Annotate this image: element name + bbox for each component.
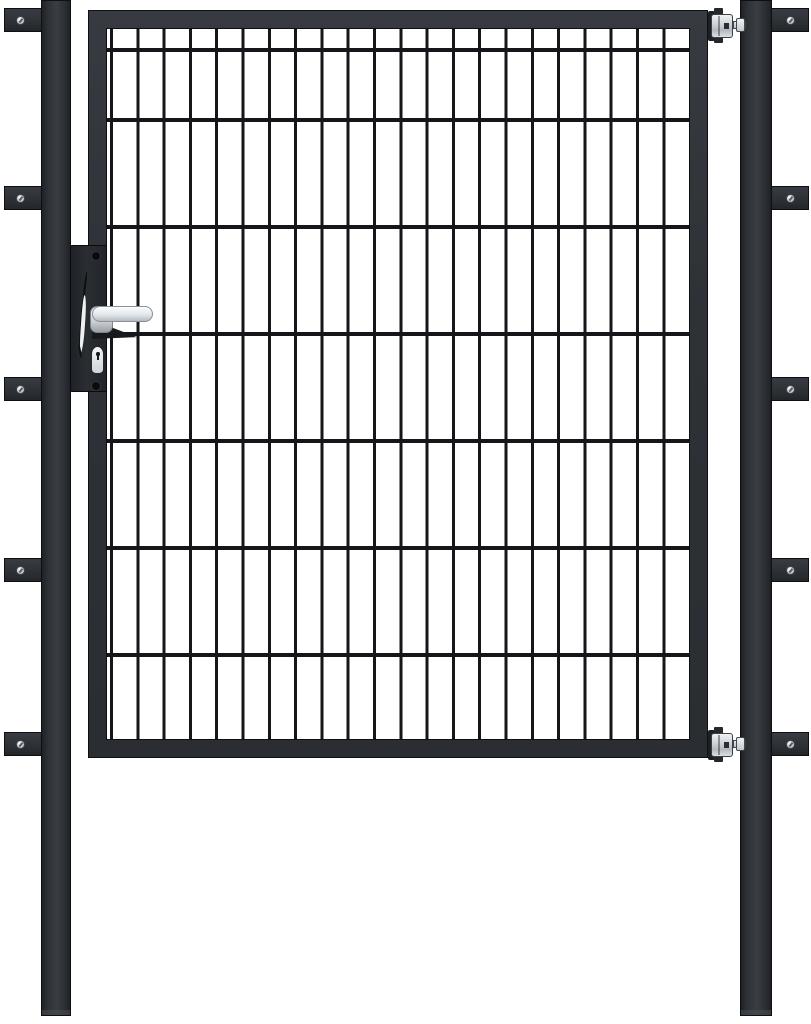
wall-bracket: [770, 558, 809, 582]
screw-icon: [786, 16, 795, 25]
fence-post-left: [41, 0, 71, 1016]
wall-bracket: [770, 732, 809, 756]
gate-frame: [88, 10, 708, 758]
wall-bracket: [770, 377, 809, 401]
screw-icon: [786, 740, 795, 749]
lock-cylinder: [91, 346, 104, 374]
wall-bracket: [770, 186, 809, 210]
wall-bracket: [4, 377, 42, 401]
screw-icon: [16, 16, 25, 25]
wall-bracket: [4, 558, 42, 582]
gate-product-photo: [0, 0, 811, 1024]
wall-bracket: [770, 8, 809, 32]
wall-bracket: [4, 732, 42, 756]
screw-icon: [786, 194, 795, 203]
screw-icon: [92, 252, 100, 260]
screw-icon: [16, 566, 25, 575]
door-handle: [92, 306, 153, 322]
hinge-bottom: [711, 733, 733, 757]
screw-icon: [92, 382, 100, 390]
wall-bracket: [4, 8, 42, 32]
fence-post-right: [740, 0, 772, 1016]
keyhole-icon: [96, 352, 100, 356]
hinge-top: [711, 14, 733, 38]
hinge-nut-icon: [736, 737, 745, 751]
screw-icon: [16, 740, 25, 749]
hinge-nut-icon: [736, 18, 745, 32]
wall-bracket: [4, 186, 42, 210]
screw-icon: [16, 385, 25, 394]
screw-icon: [786, 385, 795, 394]
screw-icon: [786, 566, 795, 575]
wire-mesh-panel: [106, 28, 690, 740]
screw-icon: [16, 194, 25, 203]
